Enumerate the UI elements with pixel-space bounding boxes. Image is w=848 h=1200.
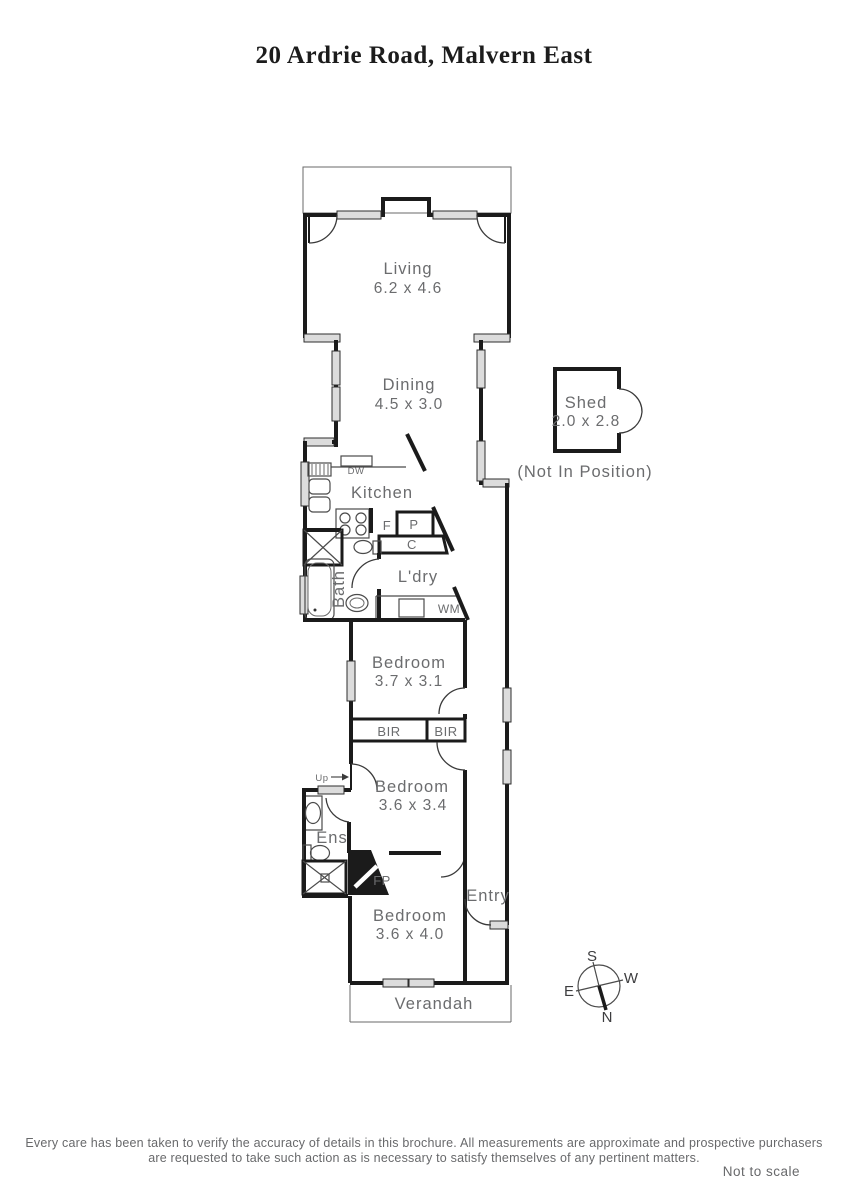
living-label: Living bbox=[383, 260, 432, 278]
dining-dims: 4.5 x 3.0 bbox=[375, 396, 443, 413]
stove-burner-2 bbox=[356, 513, 366, 523]
kitchen-label: Kitchen bbox=[351, 484, 413, 502]
verandah-label: Verandah bbox=[395, 995, 474, 1013]
stairs-up-arrowhead bbox=[342, 774, 349, 781]
bath-basin bbox=[346, 595, 368, 612]
dining-east-window-2 bbox=[477, 441, 485, 481]
shed-door-arc-bottom bbox=[619, 412, 642, 433]
compass: S W E N bbox=[564, 948, 639, 1026]
kitchen-top-window bbox=[304, 438, 334, 446]
built-in-robes: BIR BIR bbox=[351, 719, 465, 741]
bath-shower-cross bbox=[304, 530, 342, 565]
washing-machine bbox=[399, 599, 424, 617]
sink-bowl-2 bbox=[309, 497, 330, 512]
stove-burner-1 bbox=[340, 513, 350, 523]
pantry-label: P bbox=[409, 517, 418, 532]
disclaimer-line-2: are requested to take such action as is … bbox=[0, 1151, 848, 1165]
living-room: Living 6.2 x 4.6 bbox=[303, 167, 511, 342]
laundry: L'dry WM bbox=[376, 568, 468, 620]
fridge-label: F bbox=[383, 518, 391, 533]
bedroom1-dims: 3.7 x 3.1 bbox=[375, 673, 443, 690]
living-door-arc-right bbox=[477, 215, 505, 243]
kitchen-diagonal-wall-2 bbox=[433, 507, 453, 551]
bedroom3-window-1 bbox=[383, 979, 408, 987]
hall-window-1 bbox=[503, 688, 511, 722]
bedroom2-dims: 3.6 x 3.4 bbox=[379, 797, 447, 814]
bathroom: Bath bbox=[300, 530, 381, 620]
bir-left-label: BIR bbox=[377, 724, 400, 739]
bedroom2-door-arc bbox=[351, 764, 377, 790]
ensuite-vanity bbox=[306, 796, 322, 830]
entry-label: Entry bbox=[466, 887, 510, 905]
hallway-east-wall bbox=[483, 479, 511, 983]
ensuite-shower-cross bbox=[303, 861, 346, 894]
dining-east-window-1 bbox=[477, 350, 485, 388]
ensuite-toilet bbox=[311, 846, 330, 861]
bedroom-1: Bedroom 3.7 x 3.1 bbox=[303, 620, 465, 741]
scale-note: Not to scale bbox=[723, 1164, 800, 1179]
ensuite-door-arc bbox=[326, 798, 349, 822]
bedroom2-label: Bedroom bbox=[375, 778, 449, 796]
bedroom1-label: Bedroom bbox=[372, 654, 446, 672]
laundry-label: L'dry bbox=[398, 568, 438, 586]
stairs-up-label: Up bbox=[315, 773, 328, 784]
bedroom2-hall-door-arc bbox=[437, 742, 465, 770]
dining-west-window-2 bbox=[332, 387, 340, 421]
compass-south-label: S bbox=[587, 948, 597, 965]
dining-west-window-1 bbox=[332, 351, 340, 385]
bedroom3-door-arc bbox=[441, 853, 465, 877]
verandah: Verandah bbox=[350, 985, 511, 1022]
bedroom3-label: Bedroom bbox=[373, 907, 447, 925]
ensuite-window bbox=[318, 786, 344, 794]
kitchen-diagonal-wall bbox=[407, 434, 425, 471]
living-door-arc-left bbox=[309, 215, 337, 243]
sink-drainer-lines bbox=[312, 464, 328, 475]
fireplace: FP bbox=[348, 850, 391, 895]
living-window-right bbox=[433, 211, 477, 219]
shed-note: (Not In Position) bbox=[517, 463, 652, 481]
shed-door-arc-top bbox=[619, 389, 642, 412]
dishwasher-label: DW bbox=[348, 466, 365, 477]
living-window-left bbox=[337, 211, 381, 219]
disclaimer-line-1: Every care has been taken to verify the … bbox=[0, 1136, 848, 1150]
floorplan-page: 20 Ardrie Road, Malvern East Living 6.2 … bbox=[0, 0, 848, 1200]
bir-right-label: BIR bbox=[434, 724, 457, 739]
cupboard-label: C bbox=[407, 537, 417, 552]
compass-east-label: E bbox=[564, 983, 574, 1000]
ensuite-basin bbox=[306, 803, 321, 824]
entry-door-sill bbox=[490, 921, 508, 929]
stove-burner-4 bbox=[356, 525, 366, 535]
bathtub-inner bbox=[308, 563, 331, 616]
dining-room: Dining 4.5 x 3.0 bbox=[332, 340, 485, 485]
bath-toilet bbox=[354, 541, 372, 554]
ensuite-label: Ens bbox=[316, 829, 347, 847]
porch-outline bbox=[303, 167, 511, 213]
dining-label: Dining bbox=[383, 376, 436, 394]
fireplace-label: FP bbox=[373, 873, 391, 888]
bath-door-arc bbox=[352, 559, 379, 588]
compass-north-label: N bbox=[602, 1009, 613, 1026]
bath-label: Bath bbox=[330, 570, 348, 608]
bathtub-drain bbox=[314, 609, 317, 612]
bedroom1-door-arc bbox=[439, 688, 465, 714]
compass-west-label: W bbox=[624, 970, 639, 987]
washing-machine-label: WM bbox=[438, 602, 460, 616]
bedroom3-dims: 3.6 x 4.0 bbox=[376, 926, 444, 943]
shed-dims: 2.0 x 2.8 bbox=[552, 413, 620, 430]
hall-window-2 bbox=[503, 750, 511, 784]
floorplan-drawing: Living 6.2 x 4.6 Dining 4.5 x 3.0 bbox=[0, 0, 848, 1200]
shed-label: Shed bbox=[565, 394, 608, 412]
bath-basin-inner bbox=[350, 598, 364, 608]
living-dims: 6.2 x 4.6 bbox=[374, 280, 442, 297]
bath-window bbox=[300, 576, 308, 614]
ensuite: Ens bbox=[302, 786, 351, 896]
bedroom3-window-2 bbox=[409, 979, 434, 987]
sink-bowl-1 bbox=[309, 479, 330, 494]
entry: Entry bbox=[465, 887, 510, 925]
dishwasher bbox=[341, 456, 372, 466]
bedroom1-window bbox=[347, 661, 355, 701]
shed: Shed 2.0 x 2.8 (Not In Position) bbox=[517, 369, 652, 481]
